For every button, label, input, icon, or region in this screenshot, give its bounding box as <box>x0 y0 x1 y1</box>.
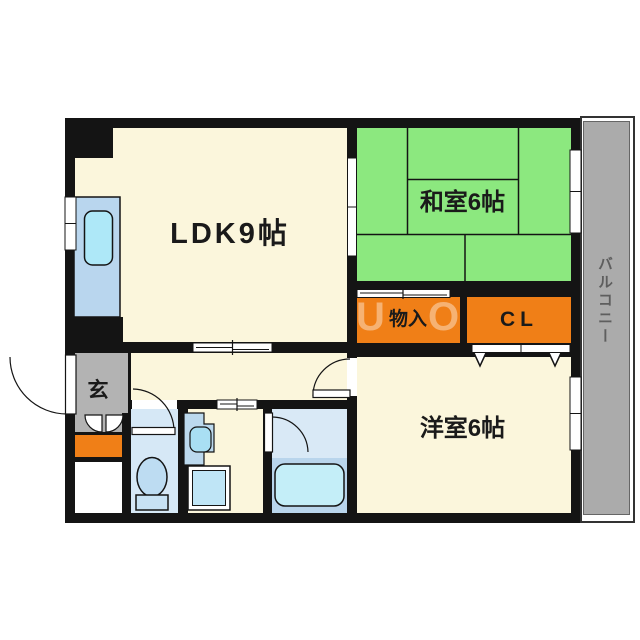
floor-plan: U O LDK9帖 和室6帖 洋室6帖 物入 CL 玄 バルコニー <box>0 0 640 640</box>
label-entrance: 玄 <box>85 379 111 402</box>
closet-folding-door-icon <box>472 344 570 366</box>
kitchen-counter-icon <box>74 197 120 317</box>
label-ldk: LDK9帖 <box>150 219 310 251</box>
japanese-room-window-icon <box>570 150 581 233</box>
toilet-icon <box>136 458 168 511</box>
label-storage: 物入 <box>377 310 439 331</box>
bathroom-door-icon <box>265 413 309 452</box>
label-balcony: バルコニー <box>594 256 615 396</box>
label-japanese-room: 和室6帖 <box>400 190 525 216</box>
washroom-sliding-door-icon <box>217 398 257 411</box>
western-room-door-icon <box>313 358 357 398</box>
washing-machine-icon <box>188 466 230 510</box>
label-closet: CL <box>487 308 551 331</box>
kitchen-window-icon <box>65 197 76 250</box>
front-door-icon <box>10 355 76 414</box>
ldk-hall-sliding-door-icon <box>193 340 272 355</box>
ldk-japanese-sliding-door-icon <box>348 158 357 256</box>
entrance-closet-doors-icon <box>85 415 123 432</box>
toilet-door-icon <box>132 389 177 435</box>
bathtub-icon <box>275 464 344 506</box>
label-western-room: 洋室6帖 <box>400 416 525 442</box>
western-room-window-icon <box>570 377 581 450</box>
washbasin-icon <box>184 413 214 465</box>
